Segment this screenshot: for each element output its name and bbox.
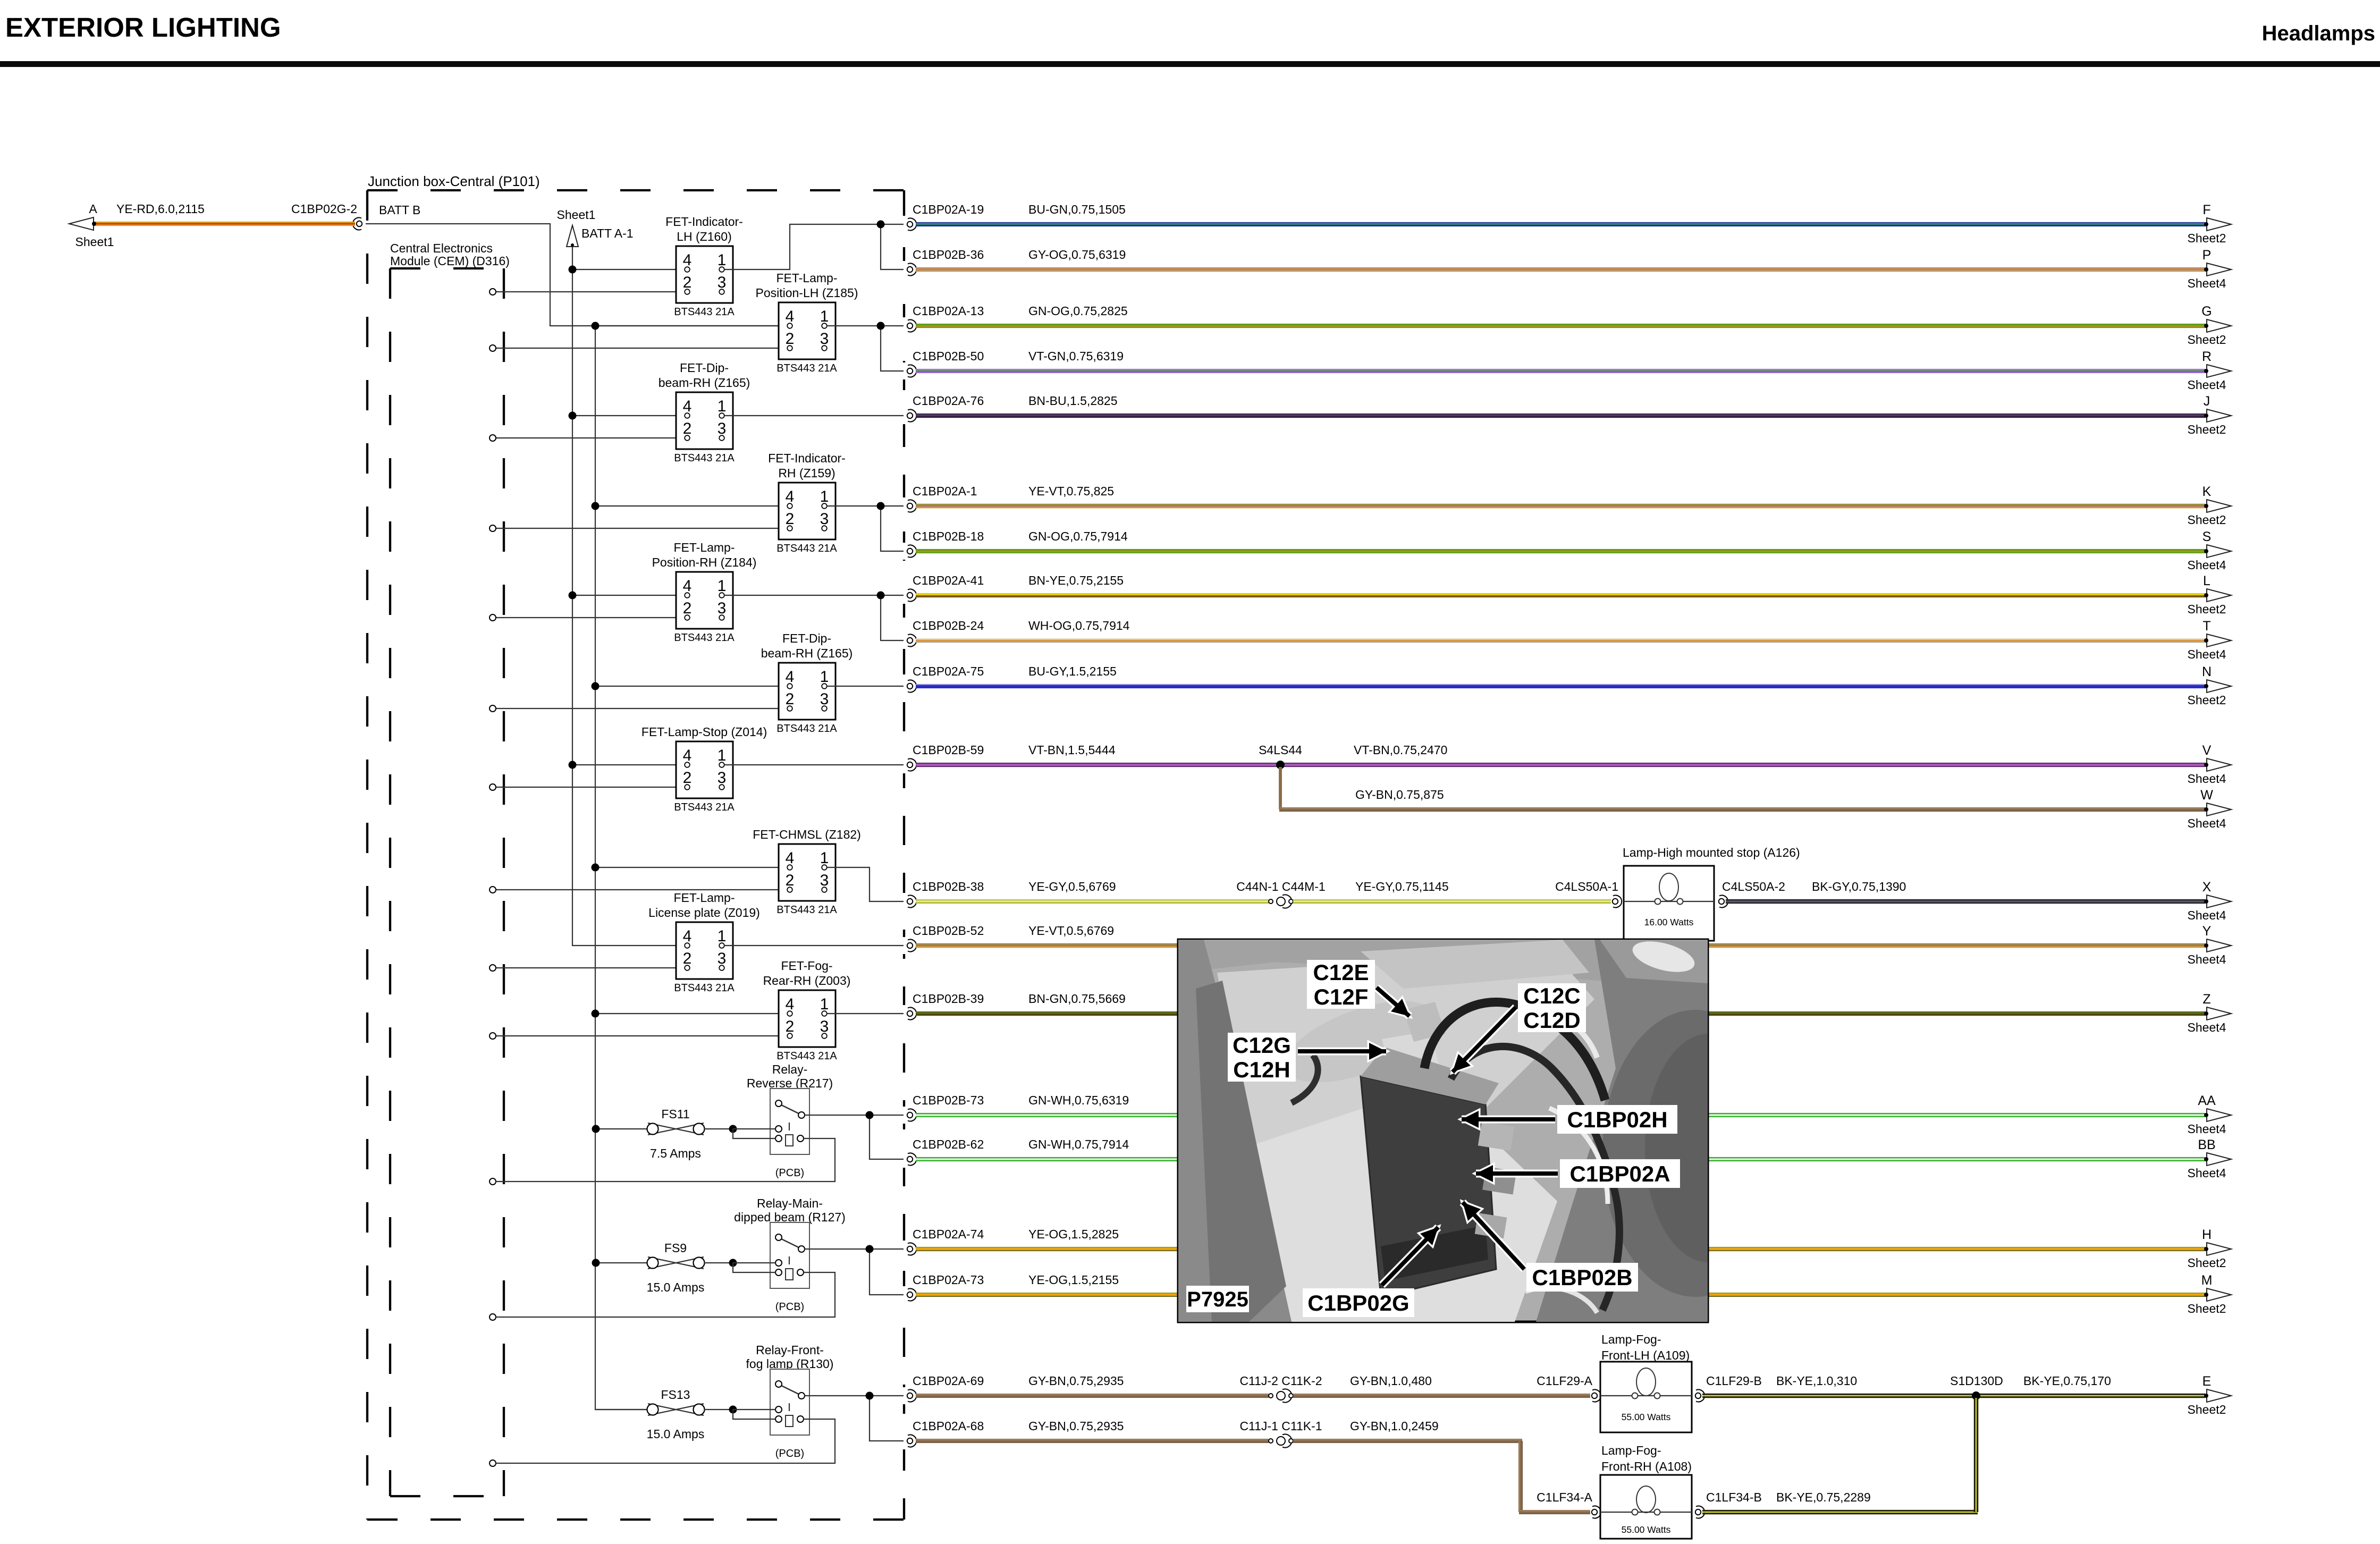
svg-text:BN-GN,0.75,5669: BN-GN,0.75,5669 [1028,992,1126,1006]
svg-text:BTS443 21A: BTS443 21A [674,982,735,994]
svg-text:BTS443 21A: BTS443 21A [777,904,837,916]
svg-text:C12F: C12F [1314,984,1369,1009]
svg-text:2: 2 [786,872,795,889]
svg-text:3: 3 [718,420,727,437]
svg-text:Front-LH (A109): Front-LH (A109) [1601,1348,1690,1362]
svg-text:FET-Dip-: FET-Dip- [680,361,729,375]
svg-text:15.0 Amps: 15.0 Amps [647,1280,705,1294]
svg-text:C11J-2 C11K-2: C11J-2 C11K-2 [1239,1374,1322,1388]
svg-text:C1BP02B-62: C1BP02B-62 [913,1137,984,1151]
svg-text:GN-OG,0.75,7914: GN-OG,0.75,7914 [1028,529,1128,543]
svg-text:3: 3 [820,690,829,708]
svg-text:X: X [2202,880,2212,895]
svg-text:GN-WH,0.75,6319: GN-WH,0.75,6319 [1028,1093,1129,1107]
svg-text:Y: Y [2202,924,2212,939]
svg-text:2: 2 [786,510,795,528]
svg-text:1: 1 [718,398,727,415]
svg-text:BN-BU,1.5,2825: BN-BU,1.5,2825 [1028,394,1117,408]
svg-text:GY-OG,0.75,6319: GY-OG,0.75,6319 [1028,248,1126,261]
svg-text:AA: AA [2198,1093,2216,1108]
svg-text:1: 1 [718,747,727,764]
svg-text:15.0 Amps: 15.0 Amps [647,1427,705,1441]
svg-text:(PCB): (PCB) [775,1448,804,1459]
svg-text:T: T [2202,619,2210,634]
svg-text:A: A [89,202,97,216]
svg-text:License plate (Z019): License plate (Z019) [648,906,760,919]
svg-text:2: 2 [683,950,692,967]
svg-text:1: 1 [820,995,829,1013]
svg-text:C1BP02A-68: C1BP02A-68 [913,1419,984,1433]
svg-text:YE-GY,0.75,1145: YE-GY,0.75,1145 [1355,880,1449,893]
svg-text:55.00 Watts: 55.00 Watts [1622,1412,1671,1422]
svg-text:YE-RD,6.0,2115: YE-RD,6.0,2115 [116,202,205,216]
svg-text:C12D: C12D [1523,1008,1580,1033]
svg-text:C4LS50A-2: C4LS50A-2 [1722,880,1785,893]
svg-text:C1BP02A: C1BP02A [1569,1161,1670,1186]
svg-text:55.00 Watts: 55.00 Watts [1622,1524,1671,1535]
svg-text:FS9: FS9 [664,1241,687,1255]
svg-text:W: W [2200,788,2213,803]
svg-text:GY-BN,1.0,2459: GY-BN,1.0,2459 [1350,1419,1439,1433]
svg-text:H: H [2202,1227,2212,1242]
svg-text:3: 3 [820,1018,829,1035]
svg-text:16.00 Watts: 16.00 Watts [1644,917,1694,927]
svg-text:Sheet2: Sheet2 [2188,423,2226,436]
svg-text:1: 1 [820,668,829,686]
svg-text:C1LF34-B: C1LF34-B [1706,1490,1762,1504]
svg-text:2: 2 [683,769,692,787]
svg-text:2: 2 [683,600,692,617]
svg-text:3: 3 [718,950,727,967]
svg-text:Relay-Front-: Relay-Front- [756,1343,824,1357]
svg-text:1: 1 [718,251,727,269]
svg-text:GY-BN,0.75,875: GY-BN,0.75,875 [1355,788,1444,801]
svg-text:C1BP02B: C1BP02B [1532,1265,1632,1290]
svg-text:Module (CEM) (D316): Module (CEM) (D316) [390,254,510,268]
svg-text:Sheet2: Sheet2 [2188,1256,2226,1270]
svg-text:Sheet2: Sheet2 [2188,1403,2226,1416]
svg-text:4: 4 [683,747,692,764]
svg-text:BTS443 21A: BTS443 21A [777,362,837,374]
svg-text:C1BP02B-52: C1BP02B-52 [913,924,984,938]
svg-text:P: P [2202,248,2212,263]
svg-text:C1BP02A-73: C1BP02A-73 [913,1273,984,1287]
svg-text:F: F [2202,203,2210,217]
svg-text:YE-OG,1.5,2155: YE-OG,1.5,2155 [1028,1273,1119,1287]
svg-text:YE-OG,1.5,2825: YE-OG,1.5,2825 [1028,1227,1119,1241]
svg-text:M: M [2201,1273,2213,1288]
svg-text:Central Electronics: Central Electronics [390,241,493,255]
svg-text:C1LF29-B: C1LF29-B [1706,1374,1762,1388]
svg-text:BTS443 21A: BTS443 21A [674,801,735,813]
svg-text:C1BP02B-24: C1BP02B-24 [913,619,984,632]
svg-text:(PCB): (PCB) [775,1167,804,1179]
svg-text:BTS443 21A: BTS443 21A [674,632,735,644]
svg-text:S1D130D: S1D130D [1950,1374,2003,1388]
svg-text:C1BP02B-39: C1BP02B-39 [913,992,984,1006]
svg-text:Position-LH (Z185): Position-LH (Z185) [755,286,858,300]
svg-text:C1BP02H: C1BP02H [1567,1107,1667,1132]
svg-text:C1BP02A-76: C1BP02A-76 [913,394,984,408]
svg-text:N: N [2202,664,2212,679]
svg-text:C1BP02B-73: C1BP02B-73 [913,1093,984,1107]
svg-text:3: 3 [820,330,829,348]
svg-text:C12G: C12G [1233,1033,1291,1058]
svg-text:Z: Z [2202,992,2210,1007]
svg-text:FET-Fog-: FET-Fog- [781,959,832,973]
svg-text:1: 1 [820,849,829,867]
svg-text:C1BP02G: C1BP02G [1307,1290,1409,1315]
svg-text:Front-RH (A108): Front-RH (A108) [1601,1459,1692,1473]
svg-text:C12E: C12E [1313,960,1369,985]
svg-text:Sheet4: Sheet4 [2188,1020,2226,1034]
svg-text:BTS443 21A: BTS443 21A [674,306,735,318]
svg-text:C1LF34-A: C1LF34-A [1537,1490,1592,1504]
svg-text:7.5 Amps: 7.5 Amps [650,1146,701,1160]
svg-text:Position-RH (Z184): Position-RH (Z184) [652,555,757,569]
svg-text:Sheet4: Sheet4 [2188,558,2226,572]
svg-text:4: 4 [683,398,692,415]
svg-text:FET-Indicator-: FET-Indicator- [768,451,846,465]
svg-text:Rear-RH (Z003): Rear-RH (Z003) [763,974,851,988]
svg-text:Sheet2: Sheet2 [2188,1302,2226,1315]
svg-text:BK-YE,1.0,310: BK-YE,1.0,310 [1776,1374,1857,1388]
svg-text:1: 1 [718,577,727,595]
svg-text:C12C: C12C [1523,983,1580,1008]
svg-text:C1BP02B-36: C1BP02B-36 [913,248,984,261]
svg-text:FET-Dip-: FET-Dip- [782,631,831,645]
svg-text:Sheet2: Sheet2 [2188,231,2226,245]
svg-text:C1BP02B-18: C1BP02B-18 [913,529,984,543]
svg-text:BK-YE,0.75,2289: BK-YE,0.75,2289 [1776,1490,1871,1504]
svg-text:BTS443 21A: BTS443 21A [777,1050,837,1062]
svg-text:3: 3 [718,600,727,617]
svg-text:C4LS50A-1: C4LS50A-1 [1555,880,1618,893]
svg-text:FET-Lamp-: FET-Lamp- [673,541,735,554]
svg-text:Relay-Main-: Relay-Main- [757,1196,823,1210]
svg-text:4: 4 [683,251,692,269]
svg-text:(PCB): (PCB) [775,1301,804,1313]
svg-text:GN-WH,0.75,7914: GN-WH,0.75,7914 [1028,1137,1129,1151]
svg-text:3: 3 [820,510,829,528]
svg-text:LH (Z160): LH (Z160) [677,230,732,243]
svg-text:FS11: FS11 [661,1107,689,1121]
svg-text:4: 4 [786,995,795,1013]
svg-text:C1BP02A-19: C1BP02A-19 [913,203,984,216]
svg-text:BTS443 21A: BTS443 21A [674,452,735,464]
svg-text:Junction box-Central (P101): Junction box-Central (P101) [368,173,540,189]
svg-text:FET-Lamp-: FET-Lamp- [673,891,735,905]
svg-text:C1BP02B-38: C1BP02B-38 [913,880,984,893]
svg-text:Sheet4: Sheet4 [2188,1122,2226,1136]
svg-text:1: 1 [820,308,829,325]
svg-text:Lamp-Fog-: Lamp-Fog- [1601,1444,1661,1457]
svg-text:BTS443 21A: BTS443 21A [777,723,837,735]
svg-text:FET-Lamp-: FET-Lamp- [776,271,837,285]
svg-text:BATT B: BATT B [379,203,420,217]
svg-text:Sheet4: Sheet4 [2188,1166,2226,1180]
svg-text:GY-BN,1.0,480: GY-BN,1.0,480 [1350,1374,1432,1388]
svg-text:beam-RH (Z165): beam-RH (Z165) [761,646,853,660]
svg-text:E: E [2202,1374,2212,1389]
svg-text:1: 1 [718,927,727,945]
svg-text:G: G [2201,304,2212,319]
svg-text:Lamp-High mounted stop (A126): Lamp-High mounted stop (A126) [1623,846,1800,859]
svg-text:Sheet4: Sheet4 [2188,816,2226,830]
svg-text:2: 2 [786,1018,795,1035]
svg-text:2: 2 [786,330,795,348]
svg-text:Sheet4: Sheet4 [2188,647,2226,661]
svg-text:C1BP02A-75: C1BP02A-75 [913,664,984,678]
svg-text:WH-OG,0.75,7914: WH-OG,0.75,7914 [1028,619,1130,632]
svg-text:3: 3 [820,872,829,889]
svg-text:4: 4 [683,577,692,595]
svg-text:BK-YE,0.75,170: BK-YE,0.75,170 [2023,1374,2111,1388]
svg-text:Sheet4: Sheet4 [2188,276,2226,290]
svg-text:C1BP02B-59: C1BP02B-59 [913,743,984,757]
svg-text:GY-BN,0.75,2935: GY-BN,0.75,2935 [1028,1419,1124,1433]
svg-text:V: V [2202,743,2212,758]
svg-text:Lamp-Fog-: Lamp-Fog- [1601,1332,1661,1346]
svg-text:4: 4 [683,927,692,945]
svg-text:BU-GY,1.5,2155: BU-GY,1.5,2155 [1028,664,1117,678]
svg-text:C44N-1 C44M-1: C44N-1 C44M-1 [1236,880,1325,893]
svg-text:C1BP02A-13: C1BP02A-13 [913,304,984,318]
svg-text:FET-CHMSL (Z182): FET-CHMSL (Z182) [753,828,861,841]
svg-text:BK-GY,0.75,1390: BK-GY,0.75,1390 [1812,880,1906,893]
svg-text:S4LS44: S4LS44 [1259,743,1302,757]
svg-text:L: L [2203,573,2210,588]
svg-text:Headlamps: Headlamps [2262,22,2375,45]
svg-text:YE-VT,0.75,825: YE-VT,0.75,825 [1028,484,1114,498]
svg-text:S: S [2202,529,2212,544]
svg-text:C1BP02B-50: C1BP02B-50 [913,349,984,363]
svg-text:R: R [2202,349,2212,364]
svg-text:P7925: P7925 [1187,1288,1248,1311]
svg-text:BB: BB [2198,1137,2215,1152]
svg-text:K: K [2202,484,2212,499]
svg-text:2: 2 [683,274,692,291]
svg-text:C1BP02A-1: C1BP02A-1 [913,484,977,498]
svg-text:Sheet4: Sheet4 [2188,952,2226,966]
svg-text:4: 4 [786,668,795,686]
svg-text:Relay-: Relay- [772,1062,807,1076]
svg-text:1: 1 [820,488,829,505]
svg-text:BU-GN,0.75,1505: BU-GN,0.75,1505 [1028,203,1126,216]
svg-text:VT-BN,1.5,5444: VT-BN,1.5,5444 [1028,743,1116,757]
svg-text:C1BP02A-74: C1BP02A-74 [913,1227,984,1241]
svg-text:GY-BN,0.75,2935: GY-BN,0.75,2935 [1028,1374,1124,1388]
svg-text:Sheet2: Sheet2 [2188,513,2226,527]
svg-text:C1BP02A-41: C1BP02A-41 [913,573,984,587]
svg-text:C12H: C12H [1233,1057,1290,1082]
svg-text:YE-GY,0.5,6769: YE-GY,0.5,6769 [1028,880,1116,893]
svg-text:C1LF29-A: C1LF29-A [1537,1374,1592,1388]
svg-text:FET-Indicator-: FET-Indicator- [665,215,743,229]
svg-text:Sheet2: Sheet2 [2188,693,2226,707]
svg-text:C11J-1 C11K-1: C11J-1 C11K-1 [1239,1419,1322,1433]
svg-text:FET-Lamp-Stop (Z014): FET-Lamp-Stop (Z014) [642,725,767,739]
svg-text:BATT A-1: BATT A-1 [581,226,634,240]
svg-text:C1BP02A-69: C1BP02A-69 [913,1374,984,1388]
svg-text:3: 3 [718,274,727,291]
svg-text:4: 4 [786,488,795,505]
svg-text:Sheet2: Sheet2 [2188,333,2226,347]
svg-text:J: J [2204,394,2210,409]
svg-text:3: 3 [718,769,727,787]
svg-text:4: 4 [786,308,795,325]
svg-text:FS13: FS13 [661,1388,690,1402]
svg-text:VT-BN,0.75,2470: VT-BN,0.75,2470 [1354,743,1447,757]
svg-text:YE-VT,0.5,6769: YE-VT,0.5,6769 [1028,924,1114,938]
svg-text:GN-OG,0.75,2825: GN-OG,0.75,2825 [1028,304,1128,318]
svg-text:VT-GN,0.75,6319: VT-GN,0.75,6319 [1028,349,1124,363]
svg-text:BTS443 21A: BTS443 21A [777,543,837,554]
svg-text:Sheet1: Sheet1 [557,208,596,222]
svg-text:RH (Z159): RH (Z159) [778,466,835,480]
svg-text:Sheet2: Sheet2 [2188,602,2226,616]
svg-text:Sheet4: Sheet4 [2188,772,2226,786]
svg-text:4: 4 [786,849,795,867]
svg-text:BN-YE,0.75,2155: BN-YE,0.75,2155 [1028,573,1124,587]
svg-text:beam-RH (Z165): beam-RH (Z165) [659,376,750,390]
svg-text:Sheet4: Sheet4 [2188,908,2226,922]
svg-text:2: 2 [683,420,692,437]
svg-text:EXTERIOR LIGHTING: EXTERIOR LIGHTING [5,12,281,43]
svg-text:2: 2 [786,690,795,708]
svg-text:Sheet1: Sheet1 [75,235,114,249]
svg-text:Sheet4: Sheet4 [2188,378,2226,392]
svg-text:C1BP02G-2: C1BP02G-2 [291,202,357,216]
